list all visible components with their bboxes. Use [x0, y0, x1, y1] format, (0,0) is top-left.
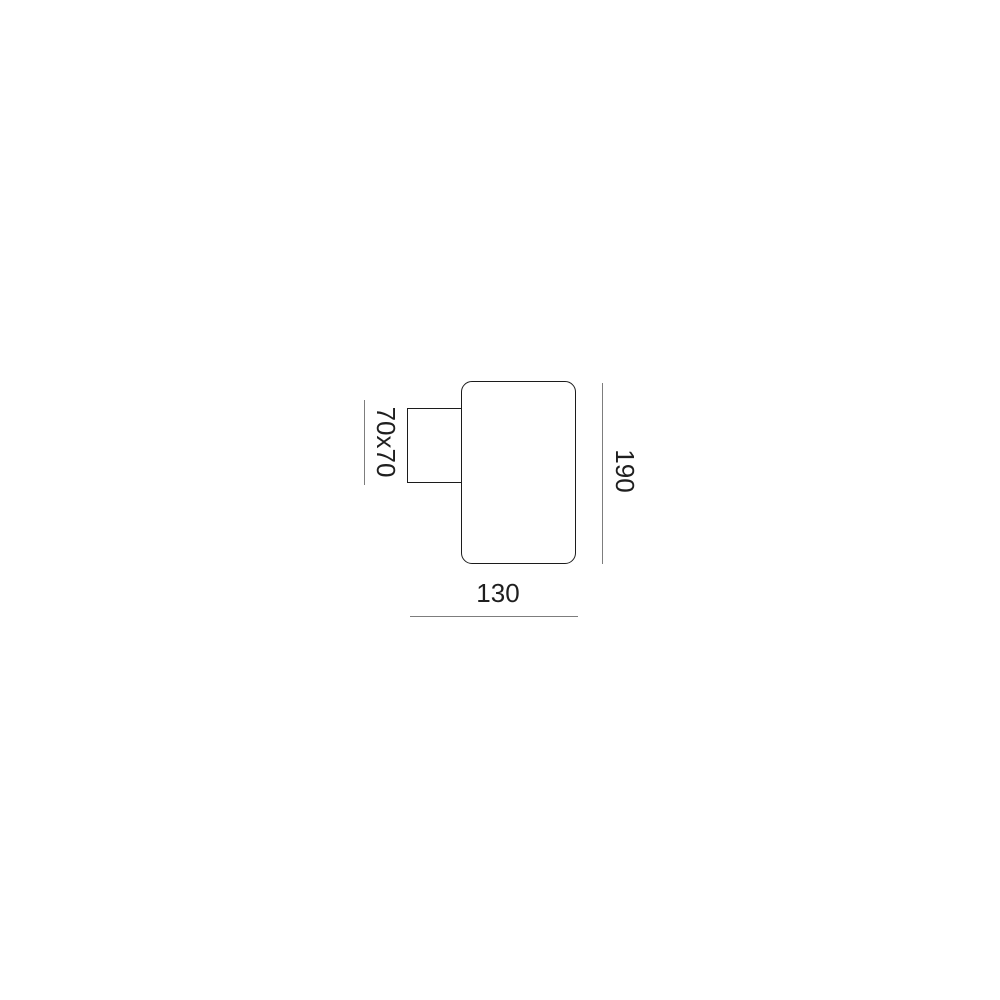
height-dimension-line [602, 383, 603, 564]
width-dimension-label: 130 [476, 580, 519, 606]
width-dimension-line [410, 616, 578, 617]
mount-bracket-outline [407, 408, 462, 483]
fixture-body-outline [461, 381, 576, 564]
height-dimension-label: 190 [612, 449, 638, 492]
diagram-canvas: 70x70 190 130 [0, 0, 1000, 1000]
bracket-dimension-line [364, 400, 365, 485]
bracket-dimension-label: 70x70 [373, 407, 399, 478]
